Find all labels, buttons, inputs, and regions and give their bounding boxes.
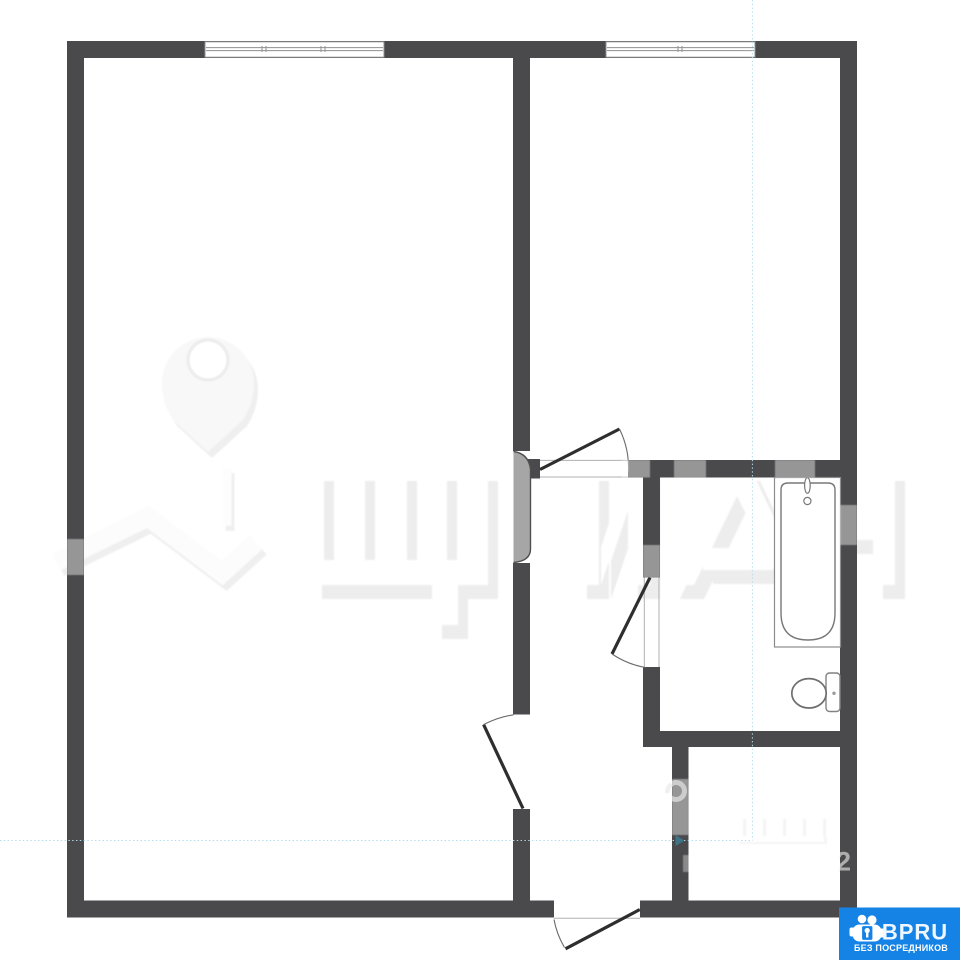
- svg-text:БЕЗ ПОСРЕДНИКОВ: БЕЗ ПОСРЕДНИКОВ: [854, 943, 948, 953]
- svg-text:2: 2: [836, 847, 851, 877]
- svg-text:BPRU: BPRU: [882, 920, 948, 945]
